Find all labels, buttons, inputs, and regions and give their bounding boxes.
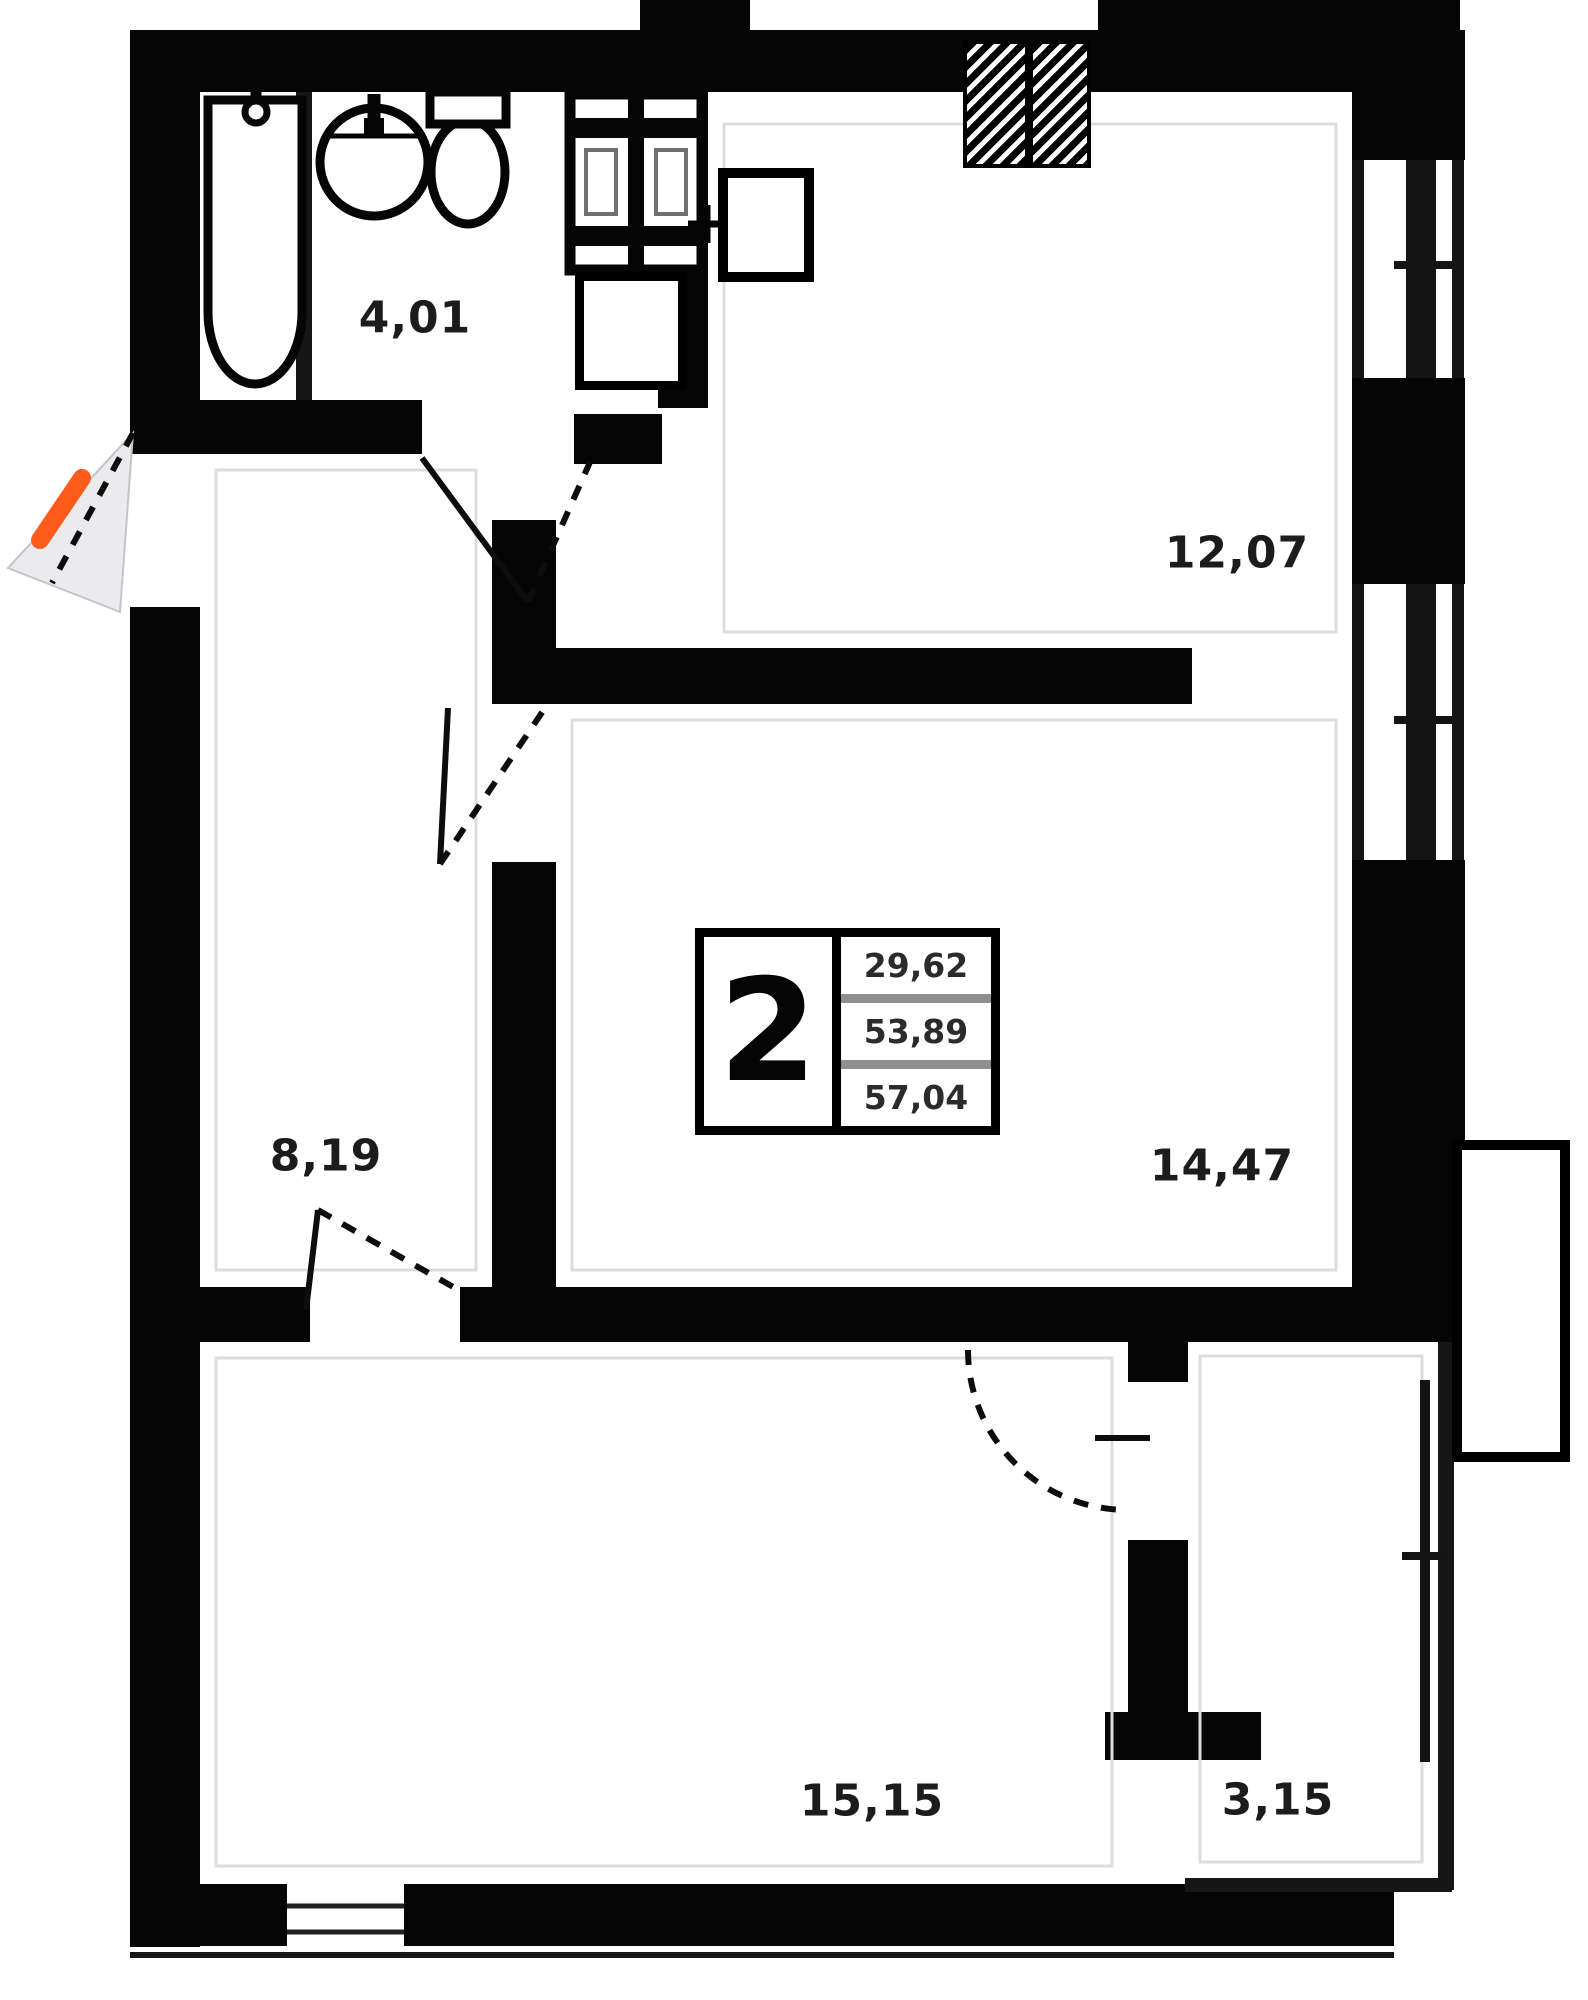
balcony-glazing — [1402, 1380, 1448, 1762]
vent-shaft-hatch-left — [963, 40, 1029, 168]
balcony-door — [968, 1350, 1150, 1510]
floor-plan: 4,01 12,07 8,19 14,47 15,15 3,15 2 29,62… — [0, 0, 1588, 2000]
window-bottom — [287, 1906, 404, 1932]
entrance-door — [8, 433, 133, 612]
room-label-living-room: 15,15 — [800, 1776, 944, 1827]
bathroom-door — [422, 458, 590, 602]
room-label-balcony: 3,15 — [1222, 1775, 1335, 1826]
living-area-value: 29,62 — [841, 937, 991, 994]
entrance-door-swing-area — [8, 433, 133, 612]
riser-shaft-icon — [570, 94, 702, 270]
riser-mark — [656, 8, 688, 34]
rooms-count: 2 — [704, 937, 841, 1126]
vent-shaft-hatch-right — [1029, 40, 1091, 168]
meter-closet — [575, 272, 687, 390]
apartment-area-value: 53,89 — [841, 994, 991, 1060]
area-table: 29,62 53,89 57,04 — [841, 937, 991, 1126]
duct-box — [718, 168, 814, 282]
window-right-kitchen — [1352, 160, 1464, 378]
living-room-door — [306, 1210, 462, 1310]
sink-icon — [320, 94, 428, 216]
room-label-bedroom: 14,47 — [1150, 1141, 1294, 1192]
room-label-kitchen: 12,07 — [1165, 528, 1309, 579]
bedroom-door — [440, 708, 545, 864]
apartment-info-box: 2 29,62 53,89 57,04 — [695, 928, 1000, 1135]
guide-living-room — [216, 1358, 1112, 1866]
window-right-bedroom — [1352, 584, 1464, 860]
total-area-value: 57,04 — [841, 1060, 991, 1126]
bay-window-box — [1452, 1140, 1570, 1462]
room-label-hallway: 8,19 — [270, 1131, 383, 1182]
room-label-bathroom: 4,01 — [359, 293, 472, 344]
toilet-icon — [430, 92, 506, 224]
bathtub-icon — [208, 58, 302, 384]
